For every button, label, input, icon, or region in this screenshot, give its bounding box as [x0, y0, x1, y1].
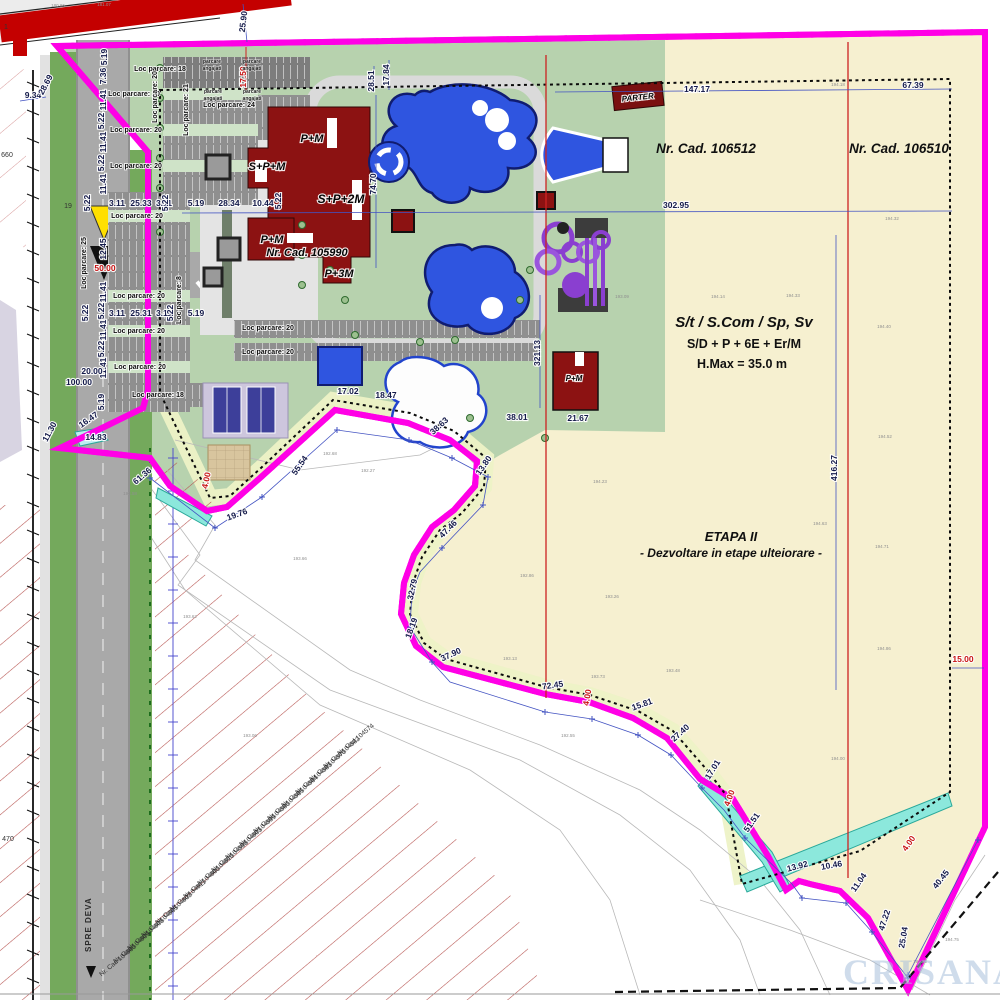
dim-label: 5.19: [188, 308, 205, 318]
dim-label: 5.22: [96, 154, 106, 171]
slide-platform: [603, 138, 628, 172]
dim-label: 38.01: [506, 412, 528, 422]
dim-label: 11.41: [98, 319, 108, 340]
red-road-stub: [13, 34, 27, 56]
employee-parking-label: angajati: [204, 96, 224, 102]
dim-label: 28.34: [218, 198, 240, 208]
sidewalk: [40, 55, 50, 1000]
dim-label: 5.22: [96, 340, 106, 357]
elevation-label: 193.48: [666, 668, 680, 673]
dim-label: 17.02: [337, 386, 359, 396]
elevation-label: 194.33: [786, 293, 800, 298]
site-plan-canvas: 25.909.3428.695.197.3611.415.2211.415.22…: [0, 0, 1000, 1000]
parcel-number-right: Nr. Cad. 106510: [849, 141, 949, 156]
dim-label: 17.84: [381, 64, 391, 86]
employee-parking-label: parcare: [203, 59, 221, 65]
dim-label-red: 50.00: [94, 263, 116, 273]
misc-label: 19: [64, 203, 72, 210]
elevation-label: 194.32: [885, 216, 899, 221]
elevation-label: 193.62: [183, 614, 197, 619]
elevation-label: 194.00: [831, 756, 845, 761]
elevation-label: 194.23: [593, 479, 607, 484]
parking-label: Loc parcare: 20: [242, 349, 294, 356]
utility-box: [206, 155, 230, 179]
dim-label: 25.33: [130, 198, 152, 208]
employee-parking-label: angajati: [243, 66, 263, 72]
parking-label: Loc parcare: 20: [111, 213, 163, 220]
parking-label: Loc parcare: 20: [113, 293, 165, 300]
building-label: P+M: [261, 234, 285, 246]
building-label: S+P+2M: [318, 192, 366, 206]
building-label: S+P+M: [249, 161, 287, 173]
dim-label: 11.41: [98, 173, 108, 194]
etapa-subtitle: - Dezvoltare in etape ulteiorare -: [640, 546, 822, 560]
elevation-label: 193.06: [243, 733, 257, 738]
elevation-label: 181.07: [97, 2, 111, 7]
dim-label: 5.19: [96, 393, 106, 410]
dim-label: 5.19: [99, 48, 109, 65]
elevation-label: 194.14: [711, 294, 725, 299]
elevation-label: 193.13: [503, 656, 517, 661]
parking-label: Loc parcare: 18: [134, 66, 186, 73]
parking-label: Loc parcare: 20: [242, 325, 294, 332]
utility-box: [218, 238, 240, 260]
elevation-label: 194.75: [945, 937, 959, 942]
building-notch: [575, 352, 584, 366]
green-strip-left: [50, 52, 76, 1000]
small-red-structure: [392, 210, 414, 232]
employee-parking-label: angajati: [203, 66, 223, 72]
dim-label: 18.47: [375, 390, 397, 400]
dim-label: 14.83: [85, 432, 107, 442]
parcel-number-left: Nr. Cad. 106512: [656, 141, 756, 156]
employee-parking-label: parcare: [204, 89, 222, 95]
parking-label: Loc parcare: 24: [203, 102, 255, 109]
dim-label: 5.22: [80, 304, 90, 321]
dim-label: 5.22: [273, 192, 283, 209]
elevation-label: 193.66: [293, 556, 307, 561]
dim-label: 5.22: [160, 194, 170, 211]
dim-label: 28.51: [366, 70, 376, 92]
utility-box: [204, 268, 222, 286]
rect-pool: [318, 347, 362, 385]
elevation-label: 192.55: [561, 733, 575, 738]
cadastral-site-plan: 25.909.3428.695.197.3611.415.2211.415.22…: [0, 0, 1000, 1000]
dim-label: 5.19: [188, 198, 205, 208]
parking-label: Loc parcare: 20: [110, 163, 162, 170]
elevation-label: 192.27: [361, 468, 375, 473]
dim-label: 3.11: [109, 308, 125, 318]
etapa-title: ETAPA II: [705, 529, 758, 544]
parking-label: Loc parcare: 8: [176, 276, 183, 324]
elevation-label: 193.73: [591, 674, 605, 679]
parking-label: Loc parcare: 21: [183, 84, 190, 136]
dim-label: 11.41: [98, 281, 108, 302]
elevation-label: 194.18: [831, 82, 845, 87]
employee-parking-label: angajati: [243, 96, 263, 102]
dim-label: 302.95: [663, 200, 689, 210]
elevation-label: 193.26: [605, 594, 619, 599]
elevation-label: 194.71: [875, 544, 889, 549]
dim-label: 3.11: [109, 198, 125, 208]
sports-pad-grid: [208, 445, 250, 480]
dim-label: 10.44: [252, 198, 274, 208]
dim-label: 5.22: [96, 302, 106, 319]
dim-label: 5.22: [82, 194, 92, 211]
pool-island: [498, 132, 516, 150]
regime-line3: H.Max = 35.0 m: [697, 357, 787, 371]
lagoon-island: [481, 297, 503, 319]
elevation-label: 194.86: [877, 646, 891, 651]
elevation-label: 194.40: [877, 324, 891, 329]
misc-label: 470: [2, 836, 14, 843]
employee-parking-label: parcare: [243, 59, 261, 65]
dim-label: 5.22: [96, 112, 106, 129]
building-label: P+M: [566, 374, 583, 383]
dim-label: 5.22: [165, 304, 175, 321]
pool-island: [472, 100, 488, 116]
dim-label: 147.17: [684, 84, 710, 94]
tennis-courts: [203, 383, 288, 438]
building-label: P+M: [301, 133, 325, 145]
dim-label: 416.27: [829, 455, 839, 481]
dim-label: 100.00: [66, 377, 92, 387]
dim-label: 12.45: [98, 238, 108, 260]
pool-island: [485, 108, 509, 132]
parking-label: Loc parcare: 20: [114, 364, 166, 371]
misc-label: 660: [1, 152, 13, 159]
elevation-label: 194.52: [878, 434, 892, 439]
employee-parking-label: parcare: [243, 89, 261, 95]
building-label: P+3M: [324, 268, 354, 280]
dim-label: 321.13: [532, 340, 542, 366]
building-label: Nr. Cad. 105990: [266, 247, 348, 259]
dim-label: 21.67: [567, 413, 589, 423]
regime-line1: S/t / S.Com / Sp, Sv: [675, 314, 814, 331]
parking-label: Loc parcare: 20: [113, 328, 165, 335]
parking-label: Loc parcare: 25: [81, 237, 88, 289]
watermark: CRISANA: [843, 952, 1000, 992]
building-notch: [287, 233, 313, 243]
dim-label: 25.31: [130, 308, 152, 318]
building-notch: [327, 118, 337, 148]
dim-label: 7.36: [98, 67, 108, 84]
dim-label: 20.00: [81, 366, 103, 376]
dim-label: 74.70: [368, 173, 378, 195]
misc-label: 1: [4, 24, 8, 31]
regime-line2: S/D + P + 6E + Er/M: [687, 337, 801, 351]
dim-label-red: 15.00: [952, 654, 974, 664]
elevation-label: 192.68: [323, 451, 337, 456]
elevation-label: 192.86: [520, 573, 534, 578]
elevation-label: 180.86: [51, 3, 65, 8]
elevation-label: 193.09: [615, 294, 629, 299]
dim-label: 67.39: [902, 80, 924, 90]
hedge: [222, 210, 232, 318]
dim-label: 11.41: [98, 131, 108, 152]
parking-label: Loc parcare: 20: [110, 127, 162, 134]
parking-label: Loc parcare: 18: [132, 392, 184, 399]
elevation-label: 194.63: [813, 521, 827, 526]
road-direction-label: SPRE DEVA: [84, 897, 93, 952]
elevation-label: 193.58: [123, 491, 137, 496]
parking-label: Loc parcare: 20: [152, 71, 159, 123]
dim-label: 11.41: [98, 89, 108, 110]
